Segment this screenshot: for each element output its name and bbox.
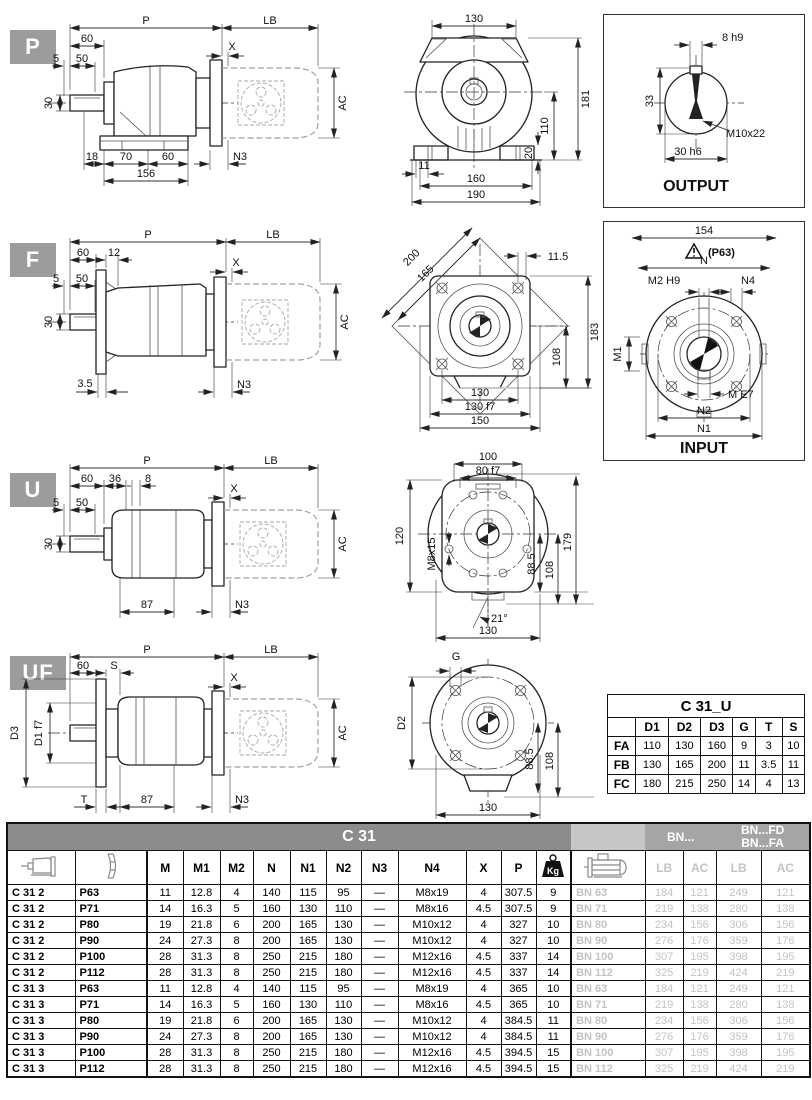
table-cell: 14 xyxy=(147,997,183,1013)
table-cell: 121 xyxy=(683,885,716,901)
input-detail-box: 154 (P63) N M2 H9 N4 M xyxy=(603,221,805,461)
output-title: OUTPUT xyxy=(663,178,729,195)
table-cell: 12.8 xyxy=(183,885,220,901)
table-cell: 325 xyxy=(645,965,683,981)
table-row: FC18021525014413 xyxy=(608,775,805,794)
table-cell: 176 xyxy=(761,933,810,949)
dim-label: 8 h9 xyxy=(722,32,743,44)
dim-label: 50 xyxy=(76,53,88,65)
table-row: D1 D2 D3 G T S xyxy=(608,718,805,737)
dim-label: 108 xyxy=(544,561,556,579)
dim-label: X xyxy=(228,41,236,53)
table-cell: 195 xyxy=(683,949,716,965)
table-row: FB130165200113.511 xyxy=(608,756,805,775)
table-cell: 130 xyxy=(326,1013,361,1029)
table-cell: 4 xyxy=(755,775,782,794)
table-cell: 110 xyxy=(326,997,361,1013)
table-cell: 130 xyxy=(668,737,700,756)
table-cell: C 31 3 xyxy=(7,981,75,997)
table-cell: 13 xyxy=(782,775,804,794)
table-cell: 28 xyxy=(147,965,183,981)
input-title: INPUT xyxy=(680,440,728,456)
table-cell: 9 xyxy=(733,737,755,756)
column-header: G xyxy=(733,718,755,737)
column-header: AC xyxy=(683,851,716,885)
table-cell: 337 xyxy=(501,965,536,981)
u-front-drawing: 100 80 f7 120 M8x15 88.5 108 179 21° 130 xyxy=(388,452,600,652)
table-cell: 21.8 xyxy=(183,1013,220,1029)
dim-label: 154 xyxy=(695,225,713,237)
dim-label: 181 xyxy=(580,90,592,108)
table-cell: 4 xyxy=(466,1029,501,1045)
table-cell: 276 xyxy=(645,1029,683,1045)
gearbox-icon xyxy=(7,851,75,885)
table-cell: P71 xyxy=(75,901,147,917)
table-cell: 24 xyxy=(147,933,183,949)
table-title: C 31 xyxy=(147,823,571,851)
title-spacer xyxy=(7,823,147,851)
table-cell: 95 xyxy=(326,981,361,997)
dim-label: 110 xyxy=(539,117,551,135)
table-cell: 140 xyxy=(253,885,290,901)
dim-label: M8x15 xyxy=(426,537,438,570)
table-row: C 31 3P1122831.38250215180—M12x164.5394.… xyxy=(7,1061,810,1078)
dim-label: 30 xyxy=(43,316,55,328)
svg-text:Kg: Kg xyxy=(547,866,559,876)
table-cell: 184 xyxy=(645,885,683,901)
table-cell: 219 xyxy=(683,1061,716,1078)
dim-label: LB xyxy=(264,645,277,656)
table-cell: P112 xyxy=(75,965,147,981)
table-cell: 24 xyxy=(147,1029,183,1045)
table-cell: 250 xyxy=(253,1061,290,1078)
table-cell: M12x16 xyxy=(398,965,466,981)
table-cell: C 31 2 xyxy=(7,965,75,981)
table-cell: 130 xyxy=(636,756,668,775)
table-cell: P63 xyxy=(75,885,147,901)
dim-label: X xyxy=(230,483,238,495)
bnfd-group-header: BN...FDBN...FA xyxy=(716,823,810,851)
table-row: C 31 2P801921.86200165130—M10x12432710BN… xyxy=(7,917,810,933)
table-cell: 219 xyxy=(645,901,683,917)
table-cell: 8 xyxy=(220,949,253,965)
table-cell: 9 xyxy=(536,901,571,917)
table-cell: 249 xyxy=(716,981,761,997)
dim-label: N3 xyxy=(235,794,249,806)
dim-label: 21° xyxy=(491,613,508,625)
motor-outline xyxy=(224,699,318,767)
dim-label: 130 xyxy=(471,387,489,399)
column-header: N2 xyxy=(326,851,361,885)
table-cell: FA xyxy=(608,737,636,756)
table-cell: 195 xyxy=(683,1045,716,1061)
table-cell: 16.3 xyxy=(183,997,220,1013)
table-cell: C 31 2 xyxy=(7,933,75,949)
table-cell: M8x16 xyxy=(398,997,466,1013)
table-cell: 165 xyxy=(290,1013,326,1029)
dim-label: 88.5 xyxy=(526,553,538,574)
table-cell: 11 xyxy=(536,1029,571,1045)
table-cell: 215 xyxy=(290,1061,326,1078)
dim-label: AC xyxy=(339,314,351,329)
dim-label: LB xyxy=(266,229,279,241)
table-cell: 8 xyxy=(220,1029,253,1045)
table-cell: 156 xyxy=(683,917,716,933)
table-cell: BN 63 xyxy=(571,885,645,901)
table-cell: 325 xyxy=(645,1061,683,1078)
table-cell: 110 xyxy=(326,901,361,917)
output-drawing: 8 h9 33 M10x22 30 h6 OUTPUT xyxy=(604,15,802,203)
table-cell: BN 80 xyxy=(571,1013,645,1029)
motor-outline xyxy=(222,68,318,138)
dim-label: 60 xyxy=(81,33,93,45)
table-cell: 11 xyxy=(147,981,183,997)
input-drawing: 154 (P63) N M2 H9 N4 M xyxy=(604,222,802,456)
dim-label: 190 xyxy=(467,189,485,201)
table-cell: 176 xyxy=(683,1029,716,1045)
table-cell: 21.8 xyxy=(183,917,220,933)
dim-label: 160 xyxy=(467,173,485,185)
table-cell: 156 xyxy=(761,917,810,933)
table-cell: P100 xyxy=(75,1045,147,1061)
dim-label: 60 xyxy=(162,151,174,163)
table-cell: P100 xyxy=(75,949,147,965)
table-cell: P80 xyxy=(75,1013,147,1029)
table-cell: 4.5 xyxy=(466,949,501,965)
table-cell: 138 xyxy=(761,901,810,917)
table-cell: 250 xyxy=(253,1045,290,1061)
dim-label: 150 xyxy=(471,415,489,427)
column-header: T xyxy=(755,718,782,737)
column-header: LB xyxy=(645,851,683,885)
table-cell: 5 xyxy=(220,901,253,917)
table-cell: 140 xyxy=(253,981,290,997)
uf-side-drawing: P LB 60 S X D3 D1 f7 AC T 87 N3 xyxy=(0,645,358,830)
table-cell: 121 xyxy=(761,885,810,901)
table-row: C 31 2P711416.35160130110—M8x164.5307.59… xyxy=(7,901,810,917)
table-cell: BN 71 xyxy=(571,997,645,1013)
table-cell: — xyxy=(361,1029,398,1045)
table-cell: 307 xyxy=(645,1045,683,1061)
table-cell: 130 xyxy=(290,997,326,1013)
table-header-row: M M1 M2 N N1 N2 N3 N4 X P Kg LB AC LB A xyxy=(7,851,810,885)
table-cell: 176 xyxy=(683,933,716,949)
table-row: C 31_U xyxy=(608,695,805,718)
table-cell: — xyxy=(361,1045,398,1061)
weight-icon: Kg xyxy=(536,851,571,885)
table-cell: M10x12 xyxy=(398,917,466,933)
table-cell: FC xyxy=(608,775,636,794)
table-cell: 4.5 xyxy=(466,901,501,917)
table-cell: 6 xyxy=(220,1013,253,1029)
column-header: S xyxy=(782,718,804,737)
table-cell: 4 xyxy=(220,981,253,997)
table-row: FA1101301609310 xyxy=(608,737,805,756)
dim-label: AC xyxy=(337,536,349,551)
table-cell: 180 xyxy=(326,1061,361,1078)
dim-label: 130 xyxy=(479,802,497,814)
dim-label: 130 f7 xyxy=(465,401,496,413)
table-cell: 15 xyxy=(536,1061,571,1078)
table-row: C 31 2P1002831.38250215180—M12x164.53371… xyxy=(7,949,810,965)
table-cell: BN 80 xyxy=(571,917,645,933)
dim-label: P xyxy=(144,229,151,241)
table-row: C 31 3P711416.35160130110—M8x164.536510B… xyxy=(7,997,810,1013)
table-cell: 115 xyxy=(290,981,326,997)
column-header: N xyxy=(253,851,290,885)
dim-label: 120 xyxy=(394,527,406,545)
table-cell: 15 xyxy=(536,1045,571,1061)
table-cell: 176 xyxy=(761,1029,810,1045)
table-cell: C 31 2 xyxy=(7,917,75,933)
table-cell: 11 xyxy=(733,756,755,775)
f-side-drawing: P LB 60 12 X 5 50 30 AC 3.5 N3 xyxy=(0,222,358,430)
table-cell: 115 xyxy=(290,885,326,901)
table-cell: 184 xyxy=(645,981,683,997)
table-cell: 130 xyxy=(326,1029,361,1045)
table-title: C 31_U xyxy=(608,695,805,718)
table-cell: 165 xyxy=(290,917,326,933)
table-cell: 31.3 xyxy=(183,965,220,981)
catalog-page: P P LB 60 X 5 50 30 AC 18 70 60 156 N3 xyxy=(0,0,812,1100)
table-cell: 8 xyxy=(220,933,253,949)
table-cell: BN 112 xyxy=(571,965,645,981)
dim-label: 108 xyxy=(551,348,563,366)
column-header: M2 xyxy=(220,851,253,885)
table-cell: 180 xyxy=(326,1045,361,1061)
column-header: AC xyxy=(761,851,810,885)
table-row: C 31 2P631112.8414011595—M8x194307.59BN … xyxy=(7,885,810,901)
dim-label: G xyxy=(452,651,461,663)
table-cell: C 31 2 xyxy=(7,901,75,917)
table-cell: 195 xyxy=(761,949,810,965)
c31-dimension-table: C 31 BN... BN...FDBN...FA M M1 M2 N N1 N… xyxy=(6,822,811,1078)
dim-label: N3 xyxy=(235,599,249,611)
uf-front-drawing: G D2 88.5 108 130 xyxy=(388,645,600,825)
table-cell: 14 xyxy=(147,901,183,917)
column-header: M1 xyxy=(183,851,220,885)
table-cell: 307.5 xyxy=(501,885,536,901)
table-cell: 10 xyxy=(536,997,571,1013)
table-cell: 10 xyxy=(536,917,571,933)
table-cell: 398 xyxy=(716,1045,761,1061)
table-cell: 165 xyxy=(290,933,326,949)
table-cell: BN 90 xyxy=(571,933,645,949)
table-cell: P90 xyxy=(75,1029,147,1045)
table-cell: 121 xyxy=(761,981,810,997)
table-cell: 14 xyxy=(536,965,571,981)
dim-label: 5 xyxy=(53,497,59,509)
dim-label: N3 xyxy=(233,151,247,163)
table-cell: M10x12 xyxy=(398,1013,466,1029)
table-cell: FB xyxy=(608,756,636,775)
dim-label: 60 xyxy=(77,247,89,259)
dim-label: 18 xyxy=(86,151,98,163)
dim-label: X xyxy=(230,672,238,684)
table-row: C 31 2P1122831.38250215180—M12x164.53371… xyxy=(7,965,810,981)
table-cell: BN 63 xyxy=(571,981,645,997)
table-cell: 200 xyxy=(253,1013,290,1029)
dim-label: P xyxy=(143,455,150,467)
table-cell: 280 xyxy=(716,997,761,1013)
table-cell: 215 xyxy=(290,1045,326,1061)
table-cell: 4.5 xyxy=(466,965,501,981)
table-cell: — xyxy=(361,981,398,997)
dim-label: N2 xyxy=(697,405,711,417)
dim-label: P xyxy=(143,645,150,656)
table-cell: 327 xyxy=(501,917,536,933)
table-cell: 180 xyxy=(326,949,361,965)
table-cell: 5 xyxy=(220,997,253,1013)
table-cell: 384.5 xyxy=(501,1013,536,1029)
table-cell: 130 xyxy=(326,917,361,933)
table-cell: 394.5 xyxy=(501,1045,536,1061)
table-cell: M10x12 xyxy=(398,933,466,949)
dim-label: D1 f7 xyxy=(33,720,45,746)
table-cell: 4.5 xyxy=(466,997,501,1013)
f-front-drawing: 200 165 11.5 183 108 130 130 f7 150 xyxy=(368,218,603,436)
table-cell: 307 xyxy=(645,949,683,965)
table-cell: 9 xyxy=(536,885,571,901)
p-front-drawing: 130 181 110 20 11 160 190 xyxy=(386,8,601,213)
dim-label: AC xyxy=(337,725,349,740)
table-cell: 4 xyxy=(220,885,253,901)
dim-label: N1 xyxy=(697,423,711,435)
table-cell: 165 xyxy=(668,756,700,775)
bnfd-label: BN...FD xyxy=(741,823,784,837)
dim-label: N4 xyxy=(741,275,755,287)
table-cell: C 31 3 xyxy=(7,1029,75,1045)
dim-label: 30 xyxy=(43,538,55,550)
table-row: C 31 3P1002831.38250215180—M12x164.5394.… xyxy=(7,1045,810,1061)
dim-label: 179 xyxy=(562,533,574,551)
table-cell: 28 xyxy=(147,1061,183,1078)
dim-label: 11.5 xyxy=(548,251,569,263)
table-cell: 11 xyxy=(536,1013,571,1029)
table-cell: C 31 2 xyxy=(7,885,75,901)
table-cell: — xyxy=(361,885,398,901)
p-side-drawing: P LB 60 X 5 50 30 AC 18 70 60 156 N3 xyxy=(0,8,358,210)
table-cell: 138 xyxy=(683,997,716,1013)
table-cell: 19 xyxy=(147,917,183,933)
dim-label: LB xyxy=(263,15,276,27)
table-cell: C 31 3 xyxy=(7,1013,75,1029)
dim-label: X xyxy=(232,257,240,269)
table-cell: 250 xyxy=(253,949,290,965)
table-cell: P112 xyxy=(75,1061,147,1078)
table-cell: 337 xyxy=(501,949,536,965)
table-cell: 195 xyxy=(761,1045,810,1061)
table-cell: 234 xyxy=(645,1013,683,1029)
dim-label: 36 xyxy=(109,473,121,485)
table-cell: C 31 3 xyxy=(7,1061,75,1078)
bnfa-label: BN...FA xyxy=(741,836,784,850)
table-row: C 31 3P902427.38200165130—M10x124384.511… xyxy=(7,1029,810,1045)
table-cell: 130 xyxy=(326,933,361,949)
table-cell: 121 xyxy=(683,981,716,997)
bn-group-header: BN... xyxy=(645,823,716,851)
dim-label: 30 h6 xyxy=(674,146,702,158)
column-header: N4 xyxy=(398,851,466,885)
column-header: X xyxy=(466,851,501,885)
table-cell: 200 xyxy=(253,1029,290,1045)
dim-label: 130 xyxy=(465,13,483,25)
table-cell: M8x19 xyxy=(398,885,466,901)
table-cell: 4 xyxy=(466,885,501,901)
dim-label: D2 xyxy=(396,716,408,730)
table-cell: 10 xyxy=(536,933,571,949)
table-cell: 359 xyxy=(716,933,761,949)
table-cell: BN 90 xyxy=(571,1029,645,1045)
table-row: C 31 2P902427.38200165130—M10x12432710BN… xyxy=(7,933,810,949)
table-cell: 31.3 xyxy=(183,949,220,965)
table-cell: 327 xyxy=(501,933,536,949)
table-cell: 234 xyxy=(645,917,683,933)
dim-label: 88.5 xyxy=(524,748,536,769)
column-header xyxy=(608,718,636,737)
table-cell: — xyxy=(361,965,398,981)
table-cell: — xyxy=(361,949,398,965)
table-cell: C 31 3 xyxy=(7,997,75,1013)
column-header: LB xyxy=(716,851,761,885)
table-cell: 4.5 xyxy=(466,1061,501,1078)
column-header: N1 xyxy=(290,851,326,885)
table-cell: C 31 2 xyxy=(7,949,75,965)
table-row: C 31 3P801921.86200165130—M10x124384.511… xyxy=(7,1013,810,1029)
table-cell: P63 xyxy=(75,981,147,997)
table-cell: 8 xyxy=(220,1045,253,1061)
dim-label: M10x22 xyxy=(726,128,765,140)
column-header: D2 xyxy=(668,718,700,737)
table-cell: 4 xyxy=(466,981,501,997)
dim-label: T xyxy=(81,794,88,806)
table-cell: 307.5 xyxy=(501,901,536,917)
dim-label: N3 xyxy=(237,379,251,391)
dim-label: M1 xyxy=(612,346,624,361)
table-cell: 160 xyxy=(701,737,733,756)
dim-label: M2 H9 xyxy=(648,275,680,287)
dim-label: 3.5 xyxy=(77,378,92,390)
dim-label: LB xyxy=(264,455,277,467)
table-cell: 398 xyxy=(716,949,761,965)
table-cell: 200 xyxy=(701,756,733,775)
table-cell: 31.3 xyxy=(183,1045,220,1061)
table-cell: 160 xyxy=(253,997,290,1013)
table-cell: 27.3 xyxy=(183,1029,220,1045)
warn-label: (P63) xyxy=(708,247,735,259)
table-cell: 249 xyxy=(716,885,761,901)
table-cell: 250 xyxy=(701,775,733,794)
dim-label: 100 xyxy=(479,452,497,463)
table-cell: 28 xyxy=(147,949,183,965)
dim-label: 80 f7 xyxy=(476,465,500,477)
table-cell: 306 xyxy=(716,1013,761,1029)
table-cell: M12x16 xyxy=(398,1061,466,1078)
table-cell: P80 xyxy=(75,917,147,933)
flange-icon xyxy=(75,851,147,885)
table-title-row: C 31 BN... BN...FDBN...FA xyxy=(7,823,810,851)
table-cell: M8x16 xyxy=(398,901,466,917)
table-cell: 11 xyxy=(782,756,804,775)
table-cell: 424 xyxy=(716,965,761,981)
table-cell: 219 xyxy=(645,997,683,1013)
motor-column-spacer xyxy=(571,823,645,851)
table-cell: 138 xyxy=(683,901,716,917)
table-cell: 12.8 xyxy=(183,981,220,997)
table-row: C 31 3P631112.8414011595—M8x19436510BN 6… xyxy=(7,981,810,997)
table-cell: BN 71 xyxy=(571,901,645,917)
table-cell: 200 xyxy=(253,933,290,949)
